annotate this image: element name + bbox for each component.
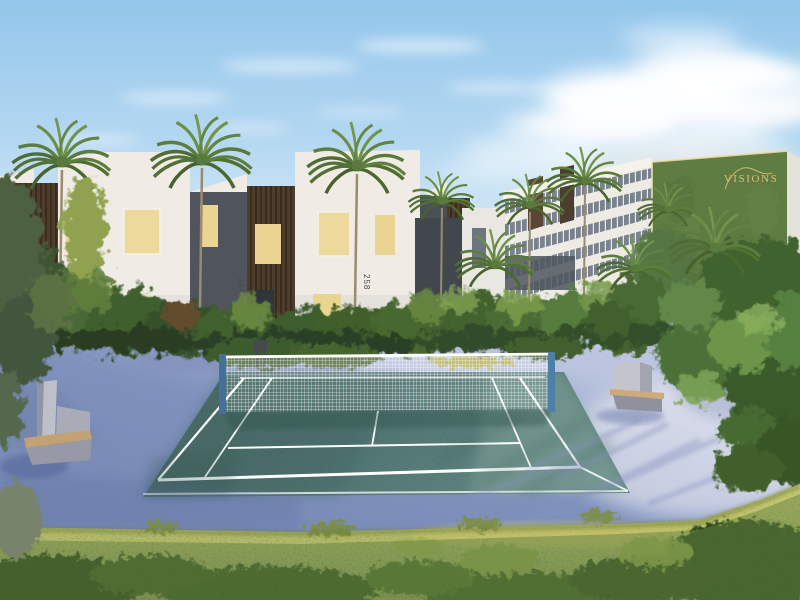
svg-text:VISIONS: VISIONS [724,173,779,185]
svg-text:258: 258 [236,278,245,294]
svg-text:258: 258 [362,274,371,290]
